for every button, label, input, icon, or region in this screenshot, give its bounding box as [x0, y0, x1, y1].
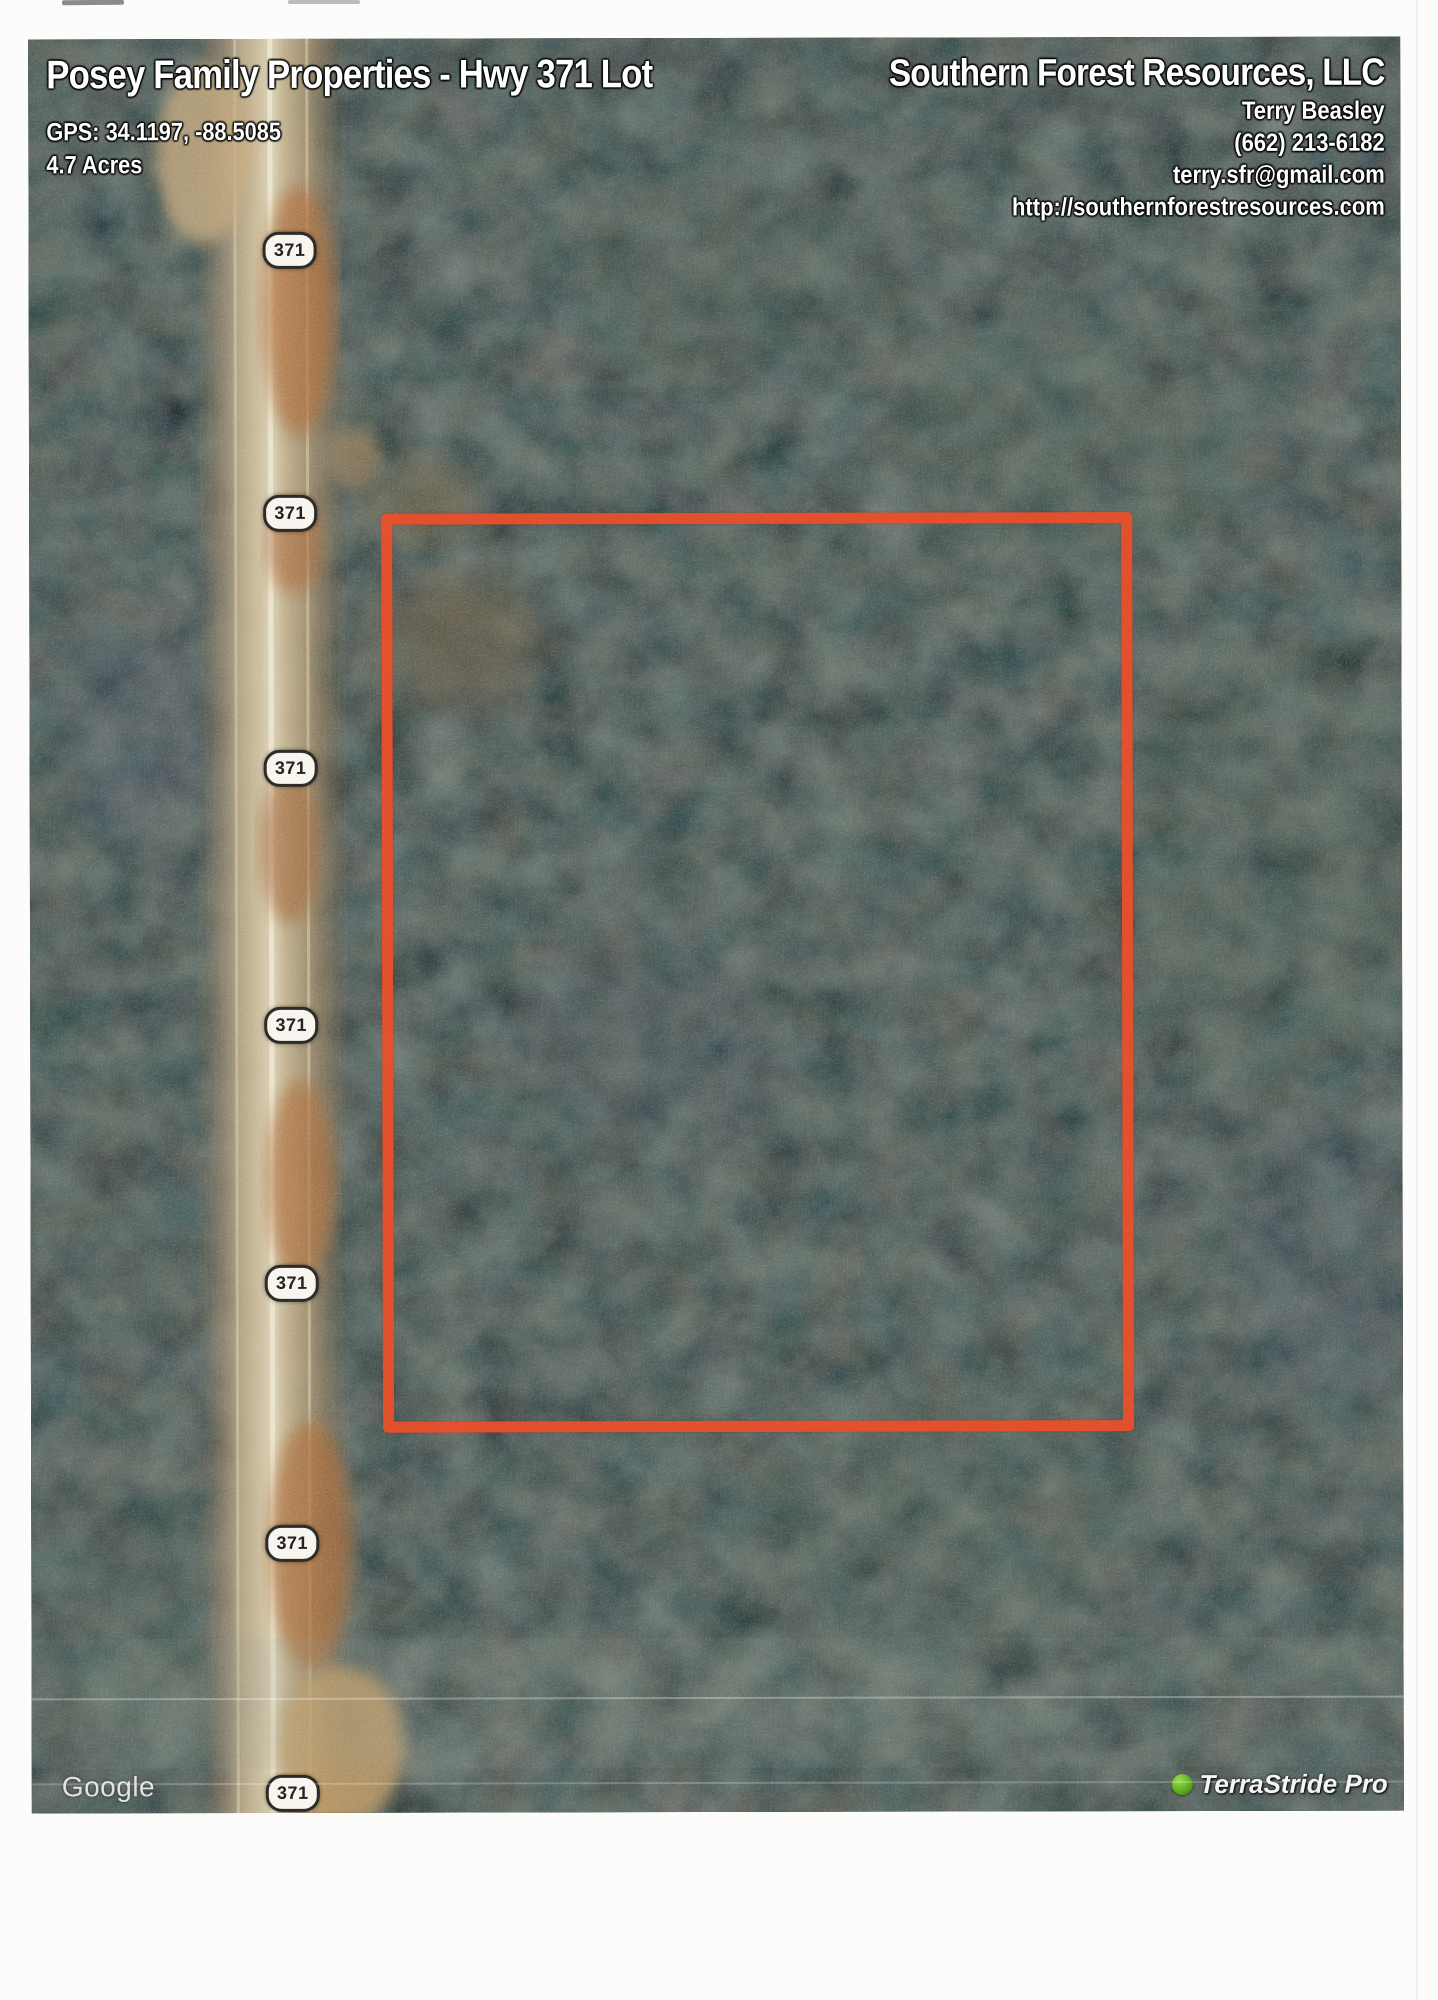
page-title: Posey Family Properties - Hwy 371 Lot: [46, 52, 652, 97]
route-shield-label: 371: [276, 1533, 308, 1554]
agent-name: Terry Beasley: [889, 95, 1385, 128]
route-shield-label: 371: [275, 758, 307, 779]
route-shield-label: 371: [277, 1783, 309, 1804]
company-header: Southern Forest Resources, LLC Terry Bea…: [888, 51, 1384, 224]
terrastride-watermark: TerraStride Pro: [1171, 1769, 1387, 1800]
property-boundary-outline: [381, 512, 1134, 1433]
route-shield-371: 371: [265, 1525, 319, 1562]
route-shield-371: 371: [263, 495, 317, 532]
scan-smudge: [62, 0, 124, 5]
route-shield-label: 371: [276, 1273, 308, 1294]
route-shield-371: 371: [264, 1007, 318, 1044]
paper-edge-shadow: [1416, 0, 1418, 2000]
aerial-map: 371 371 371 371 371 371 371 Posey Family…: [28, 37, 1404, 1814]
email-address: terry.sfr@gmail.com: [889, 159, 1385, 192]
scan-smudge: [288, 0, 360, 4]
terrastride-globe-icon: [1171, 1774, 1192, 1795]
gps-coordinates: GPS: 34.1197, -88.5085: [46, 115, 652, 149]
terrastride-label: TerraStride Pro: [1199, 1769, 1387, 1800]
route-shield-label: 371: [275, 1015, 307, 1036]
route-shield-371: 371: [265, 1265, 319, 1302]
google-watermark: Google: [62, 1771, 155, 1803]
route-shield-371: 371: [264, 750, 318, 787]
company-name: Southern Forest Resources, LLC: [888, 51, 1384, 96]
acreage-label: 4.7 Acres: [46, 148, 652, 182]
property-header: Posey Family Properties - Hwy 371 Lot GP…: [46, 52, 652, 182]
route-shield-label: 371: [274, 503, 306, 524]
route-shield-label: 371: [274, 240, 306, 261]
route-shield-371: 371: [263, 232, 317, 269]
phone-number: (662) 213-6182: [889, 127, 1385, 160]
website-url: http://southernforestresources.com: [889, 191, 1385, 224]
scanned-page: 371 371 371 371 371 371 371 Posey Family…: [0, 0, 1438, 2000]
route-shield-371: 371: [266, 1775, 320, 1812]
